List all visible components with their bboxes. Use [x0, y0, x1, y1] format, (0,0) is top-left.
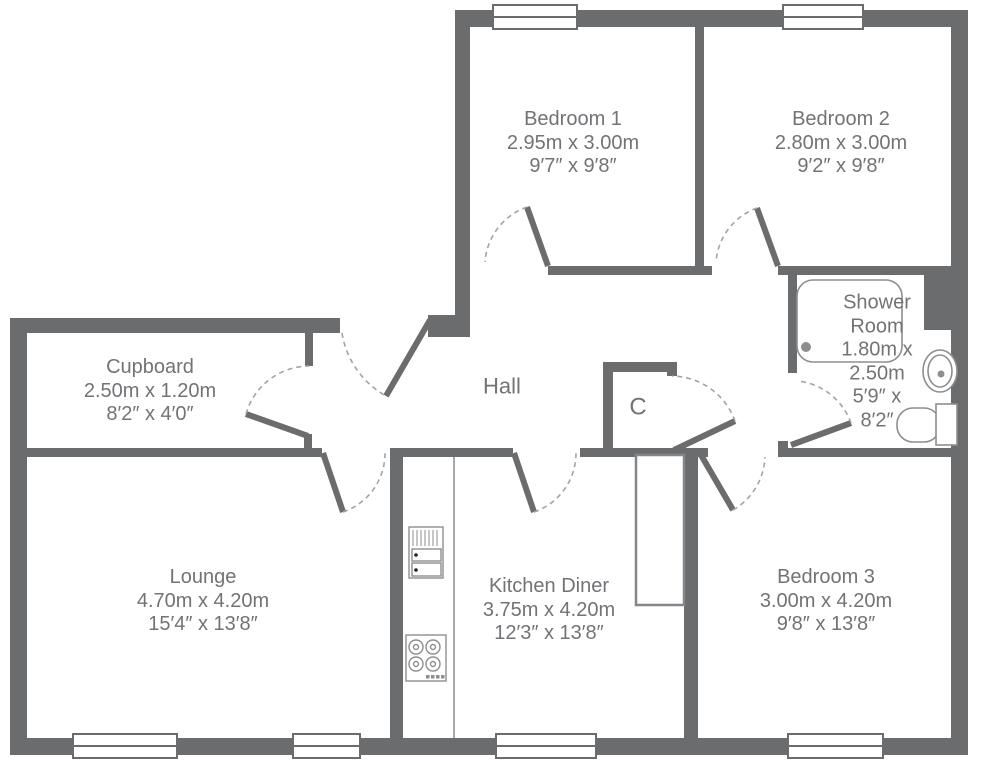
wall-shower-hinge-stub	[778, 441, 788, 449]
wall-cupboard-door-stub	[305, 333, 313, 366]
door-swing-arc	[733, 457, 765, 510]
window-kitchen	[496, 734, 596, 758]
door-swing-arc	[716, 208, 757, 262]
door-bedroom-1	[485, 207, 548, 266]
door-entrance	[342, 320, 430, 396]
room-label-cupboard: Cupboard 2.50m x 1.20m 8′2″ x 4′0″	[84, 356, 216, 427]
door-bedroom-2	[716, 208, 778, 266]
window-bedroom3	[788, 734, 883, 758]
wall-bedroom1-west	[455, 10, 470, 337]
room-size-metric: 2.80m x 3.00m	[775, 131, 907, 155]
room-size-metric: 3.75m x 4.20m	[483, 598, 615, 622]
wall-bedroom1-south	[548, 266, 695, 275]
room-name: Cupboard	[84, 356, 216, 380]
wall-closet-west	[603, 362, 613, 448]
room-name: Hall	[483, 374, 521, 398]
wall-shower-west	[788, 275, 797, 373]
wall-left	[10, 318, 27, 755]
wall-bedroom-divider	[695, 27, 704, 266]
wall-cupboard-top	[10, 318, 340, 333]
door-swing-arc	[534, 453, 576, 512]
room-name: Shower	[841, 292, 912, 316]
room-size-imperial: 9′8″ x 13′8″	[760, 613, 892, 637]
boiler-cupboard-icon	[636, 455, 684, 605]
room-label-closet: C	[629, 395, 646, 419]
room-name: C	[629, 395, 646, 419]
hob-icon	[406, 635, 446, 681]
room-label-hall: Hall	[483, 374, 521, 398]
door-swing-arc	[246, 366, 309, 414]
room-label-lounge: Lounge 4.70m x 4.20m 15′4″ x 13′8″	[137, 566, 269, 637]
room-label-shower-room: Shower Room 1.80m x 2.50m 5′9″ x 8′2″	[841, 292, 912, 433]
wall-closet-stub	[667, 362, 677, 376]
room-name: Bedroom 3	[760, 566, 892, 590]
room-label-bedroom3: Bedroom 3 3.00m x 4.20m 9′8″ x 13′8″	[760, 566, 892, 637]
room-size-imperial: 9′2″ x 9′8″	[775, 155, 907, 179]
room-size-imperial: 9′7″ x 9′8″	[507, 155, 639, 179]
wall-shower-notch	[924, 275, 951, 330]
door-swing-arc	[672, 376, 735, 421]
window-bedroom1	[493, 5, 577, 29]
door-swing-arc	[342, 333, 386, 396]
room-size-imperial: 5′9″ x	[841, 386, 912, 410]
room-label-bedroom2: Bedroom 2 2.80m x 3.00m 9′2″ x 9′8″	[775, 108, 907, 179]
door-swing-arc	[343, 453, 385, 512]
room-size-imperial: 12′3″ x 13′8″	[483, 622, 615, 646]
room-size-imperial: 8′2″	[841, 409, 912, 433]
door-hall-closet	[672, 376, 735, 450]
room-size-metric: 2.50m	[841, 362, 912, 386]
wall-cupboard-south	[10, 448, 322, 457]
door-bedroom-3	[701, 455, 765, 510]
room-size-metric: 3.00m x 4.20m	[760, 589, 892, 613]
window-lounge-left	[73, 734, 177, 758]
door-kitchen	[514, 453, 576, 512]
room-name: Kitchen Diner	[483, 575, 615, 599]
door-swing-arc	[485, 207, 527, 262]
wash-basin-icon	[923, 350, 957, 392]
window-bedroom2	[783, 5, 863, 29]
room-label-bedroom1: Bedroom 1 2.95m x 3.00m 9′7″ x 9′8″	[507, 108, 639, 179]
window-lounge-right	[293, 734, 360, 758]
room-name: Room	[841, 315, 912, 339]
room-size-metric: 1.80m x	[841, 339, 912, 363]
room-label-kitchen-diner: Kitchen Diner 3.75m x 4.20m 12′3″ x 13′8…	[483, 575, 615, 646]
wall-kitchen-east	[684, 448, 698, 738]
room-size-metric: 4.70m x 4.20m	[137, 589, 269, 613]
room-name: Lounge	[137, 566, 269, 590]
door-lounge	[323, 453, 385, 512]
room-size-imperial: 8′2″ x 4′0″	[84, 403, 216, 427]
door-cupboard	[246, 366, 309, 436]
room-name: Bedroom 2	[775, 108, 907, 132]
room-size-imperial: 15′4″ x 13′8″	[137, 613, 269, 637]
floor-plan: Bedroom 1 2.95m x 3.00m 9′7″ x 9′8″ Bedr…	[0, 0, 993, 768]
wall-entry-jamb	[428, 315, 470, 337]
room-size-metric: 2.50m x 1.20m	[84, 379, 216, 403]
room-size-metric: 2.95m x 3.00m	[507, 131, 639, 155]
wall-closet-north	[603, 362, 677, 372]
wall-bedroom2-south	[778, 266, 951, 275]
room-name: Bedroom 1	[507, 108, 639, 132]
wall-kitchen-west	[390, 448, 403, 738]
wall-hall-south-mid	[390, 448, 513, 457]
wall-bedroom3-north	[778, 448, 951, 457]
oven-icon	[409, 527, 443, 578]
doors	[246, 207, 851, 512]
